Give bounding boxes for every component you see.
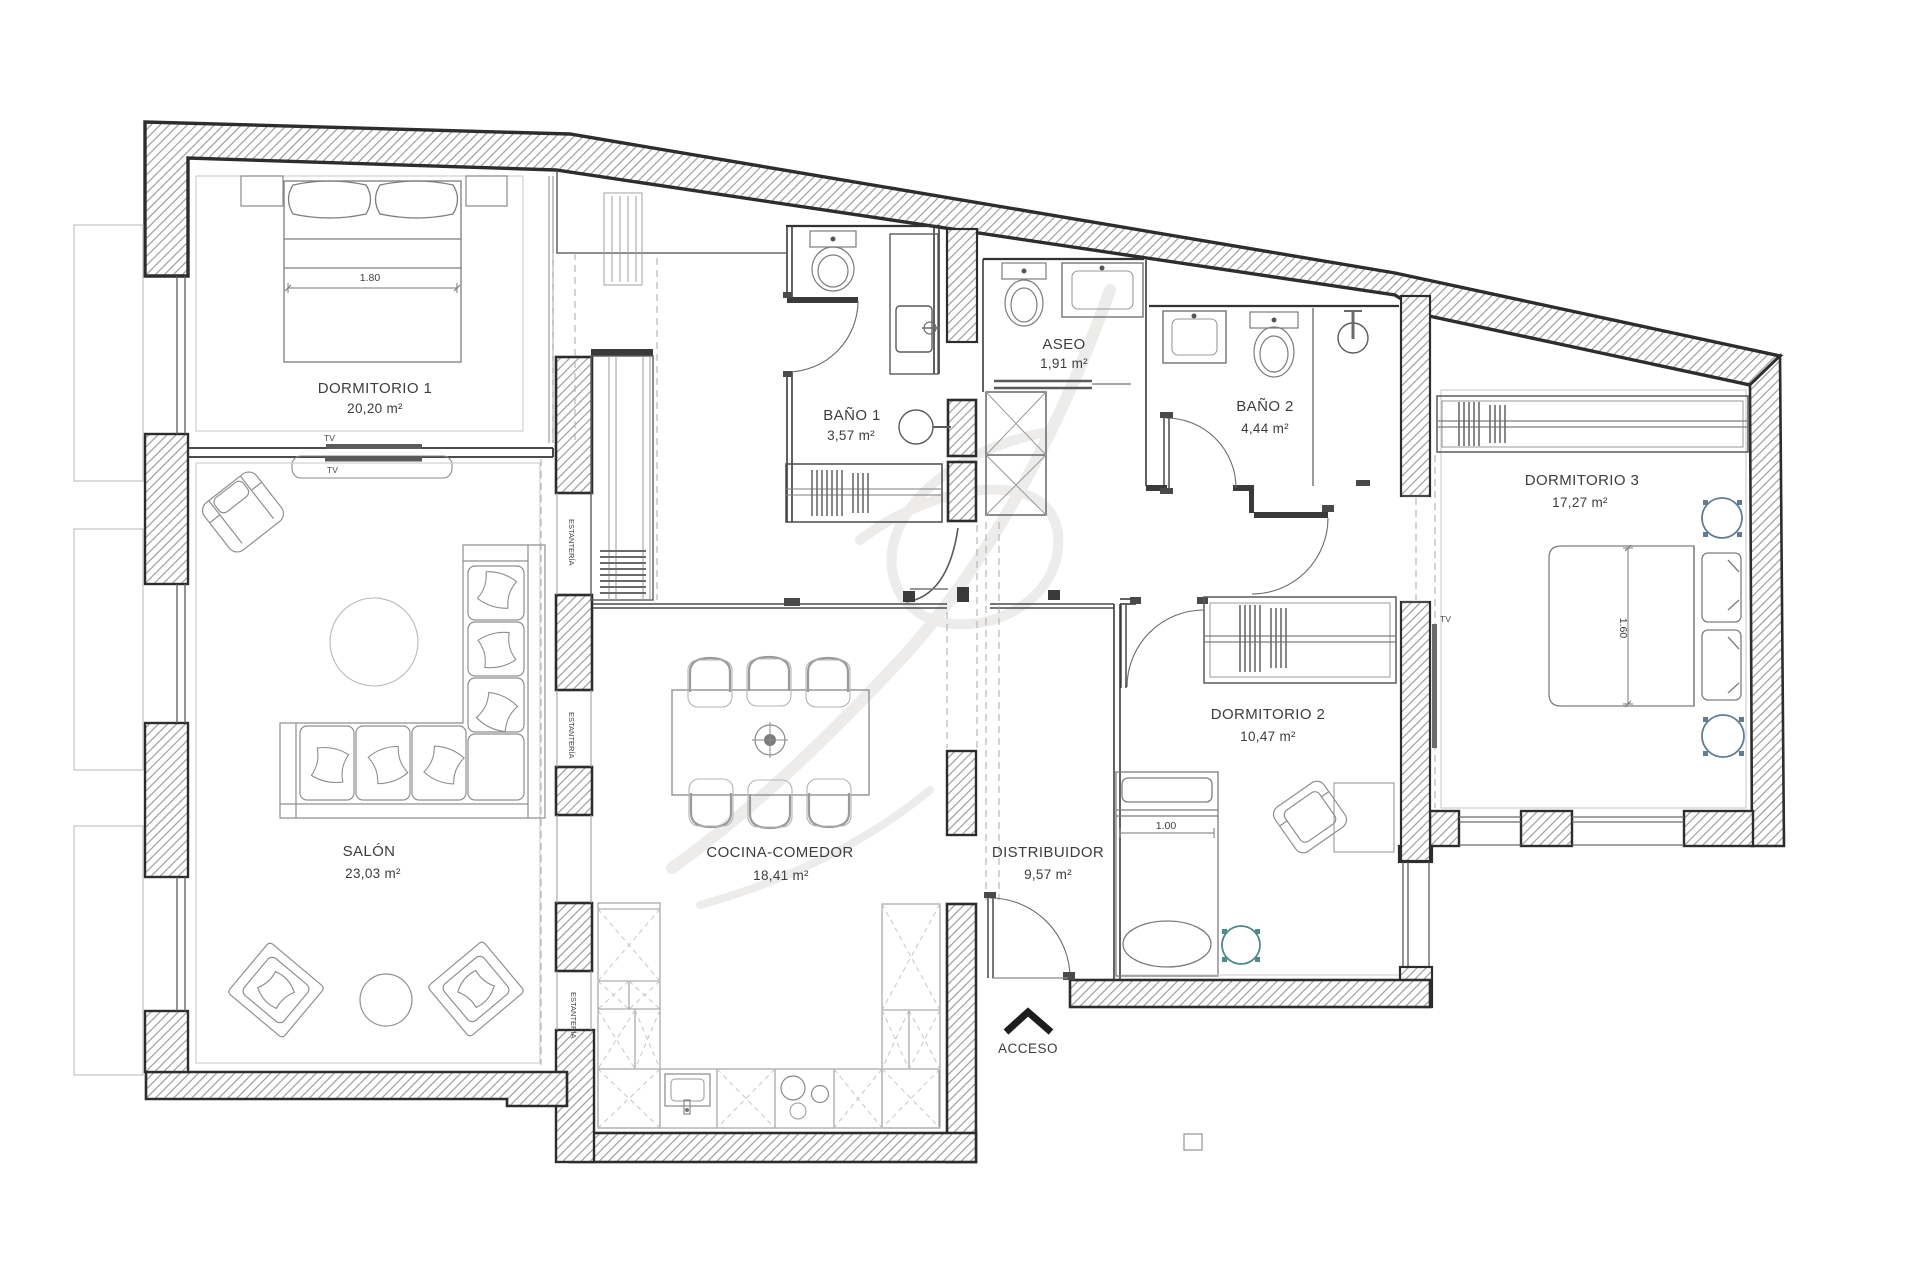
svg-text:DORMITORIO 2: DORMITORIO 2 xyxy=(1211,706,1326,723)
svg-text:4,44 m²: 4,44 m² xyxy=(1241,421,1289,436)
svg-text:BAÑO 2: BAÑO 2 xyxy=(1236,398,1293,415)
svg-text:TV: TV xyxy=(1440,614,1451,624)
svg-text:ESTANTERÍA: ESTANTERÍA xyxy=(567,712,576,759)
svg-text:23,03 m²: 23,03 m² xyxy=(345,866,401,881)
svg-text:1.00: 1.00 xyxy=(1156,820,1177,832)
svg-text:DORMITORIO 3: DORMITORIO 3 xyxy=(1525,472,1640,489)
svg-text:20,20 m²: 20,20 m² xyxy=(347,401,403,416)
svg-text:TV: TV xyxy=(324,433,335,443)
svg-text:SALÓN: SALÓN xyxy=(343,843,396,860)
svg-text:17,27 m²: 17,27 m² xyxy=(1552,495,1608,510)
svg-text:10,47 m²: 10,47 m² xyxy=(1240,729,1296,744)
svg-text:18,41 m²: 18,41 m² xyxy=(753,868,809,883)
svg-text:BAÑO 1: BAÑO 1 xyxy=(823,407,880,424)
svg-text:COCINA-COMEDOR: COCINA-COMEDOR xyxy=(706,844,853,861)
svg-text:1.60: 1.60 xyxy=(1617,618,1629,639)
svg-text:TV: TV xyxy=(327,465,338,475)
svg-text:1,91 m²: 1,91 m² xyxy=(1040,356,1088,371)
svg-text:1.80: 1.80 xyxy=(360,272,381,284)
svg-text:3,57 m²: 3,57 m² xyxy=(827,428,875,443)
svg-text:DORMITORIO 1: DORMITORIO 1 xyxy=(318,380,433,397)
svg-text:9,57 m²: 9,57 m² xyxy=(1024,867,1072,882)
svg-text:DISTRIBUIDOR: DISTRIBUIDOR xyxy=(992,844,1104,861)
svg-text:ASEO: ASEO xyxy=(1042,336,1085,353)
svg-text:ESTANTERÍA: ESTANTERÍA xyxy=(567,519,576,566)
svg-text:ACCESO: ACCESO xyxy=(998,1041,1058,1056)
svg-text:ESTANTERÍA: ESTANTERÍA xyxy=(569,992,578,1039)
